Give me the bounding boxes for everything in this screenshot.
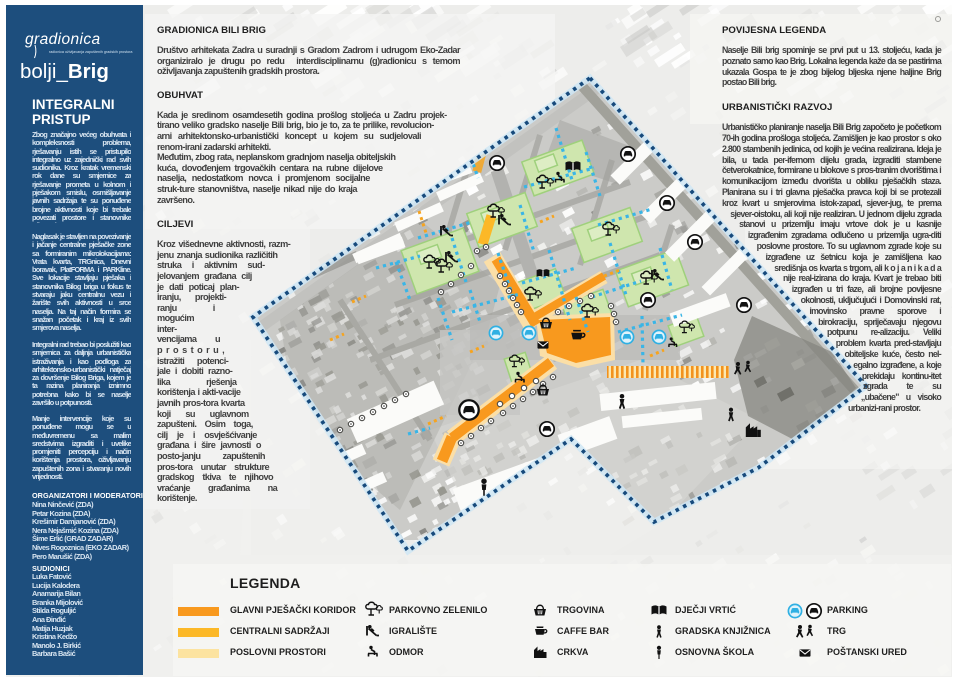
svg-text:gradionica: gradionica [25,31,101,48]
svg-text:radionica oživljavanja zapušte: radionica oživljavanja zapuštenih gradsk… [49,50,133,54]
